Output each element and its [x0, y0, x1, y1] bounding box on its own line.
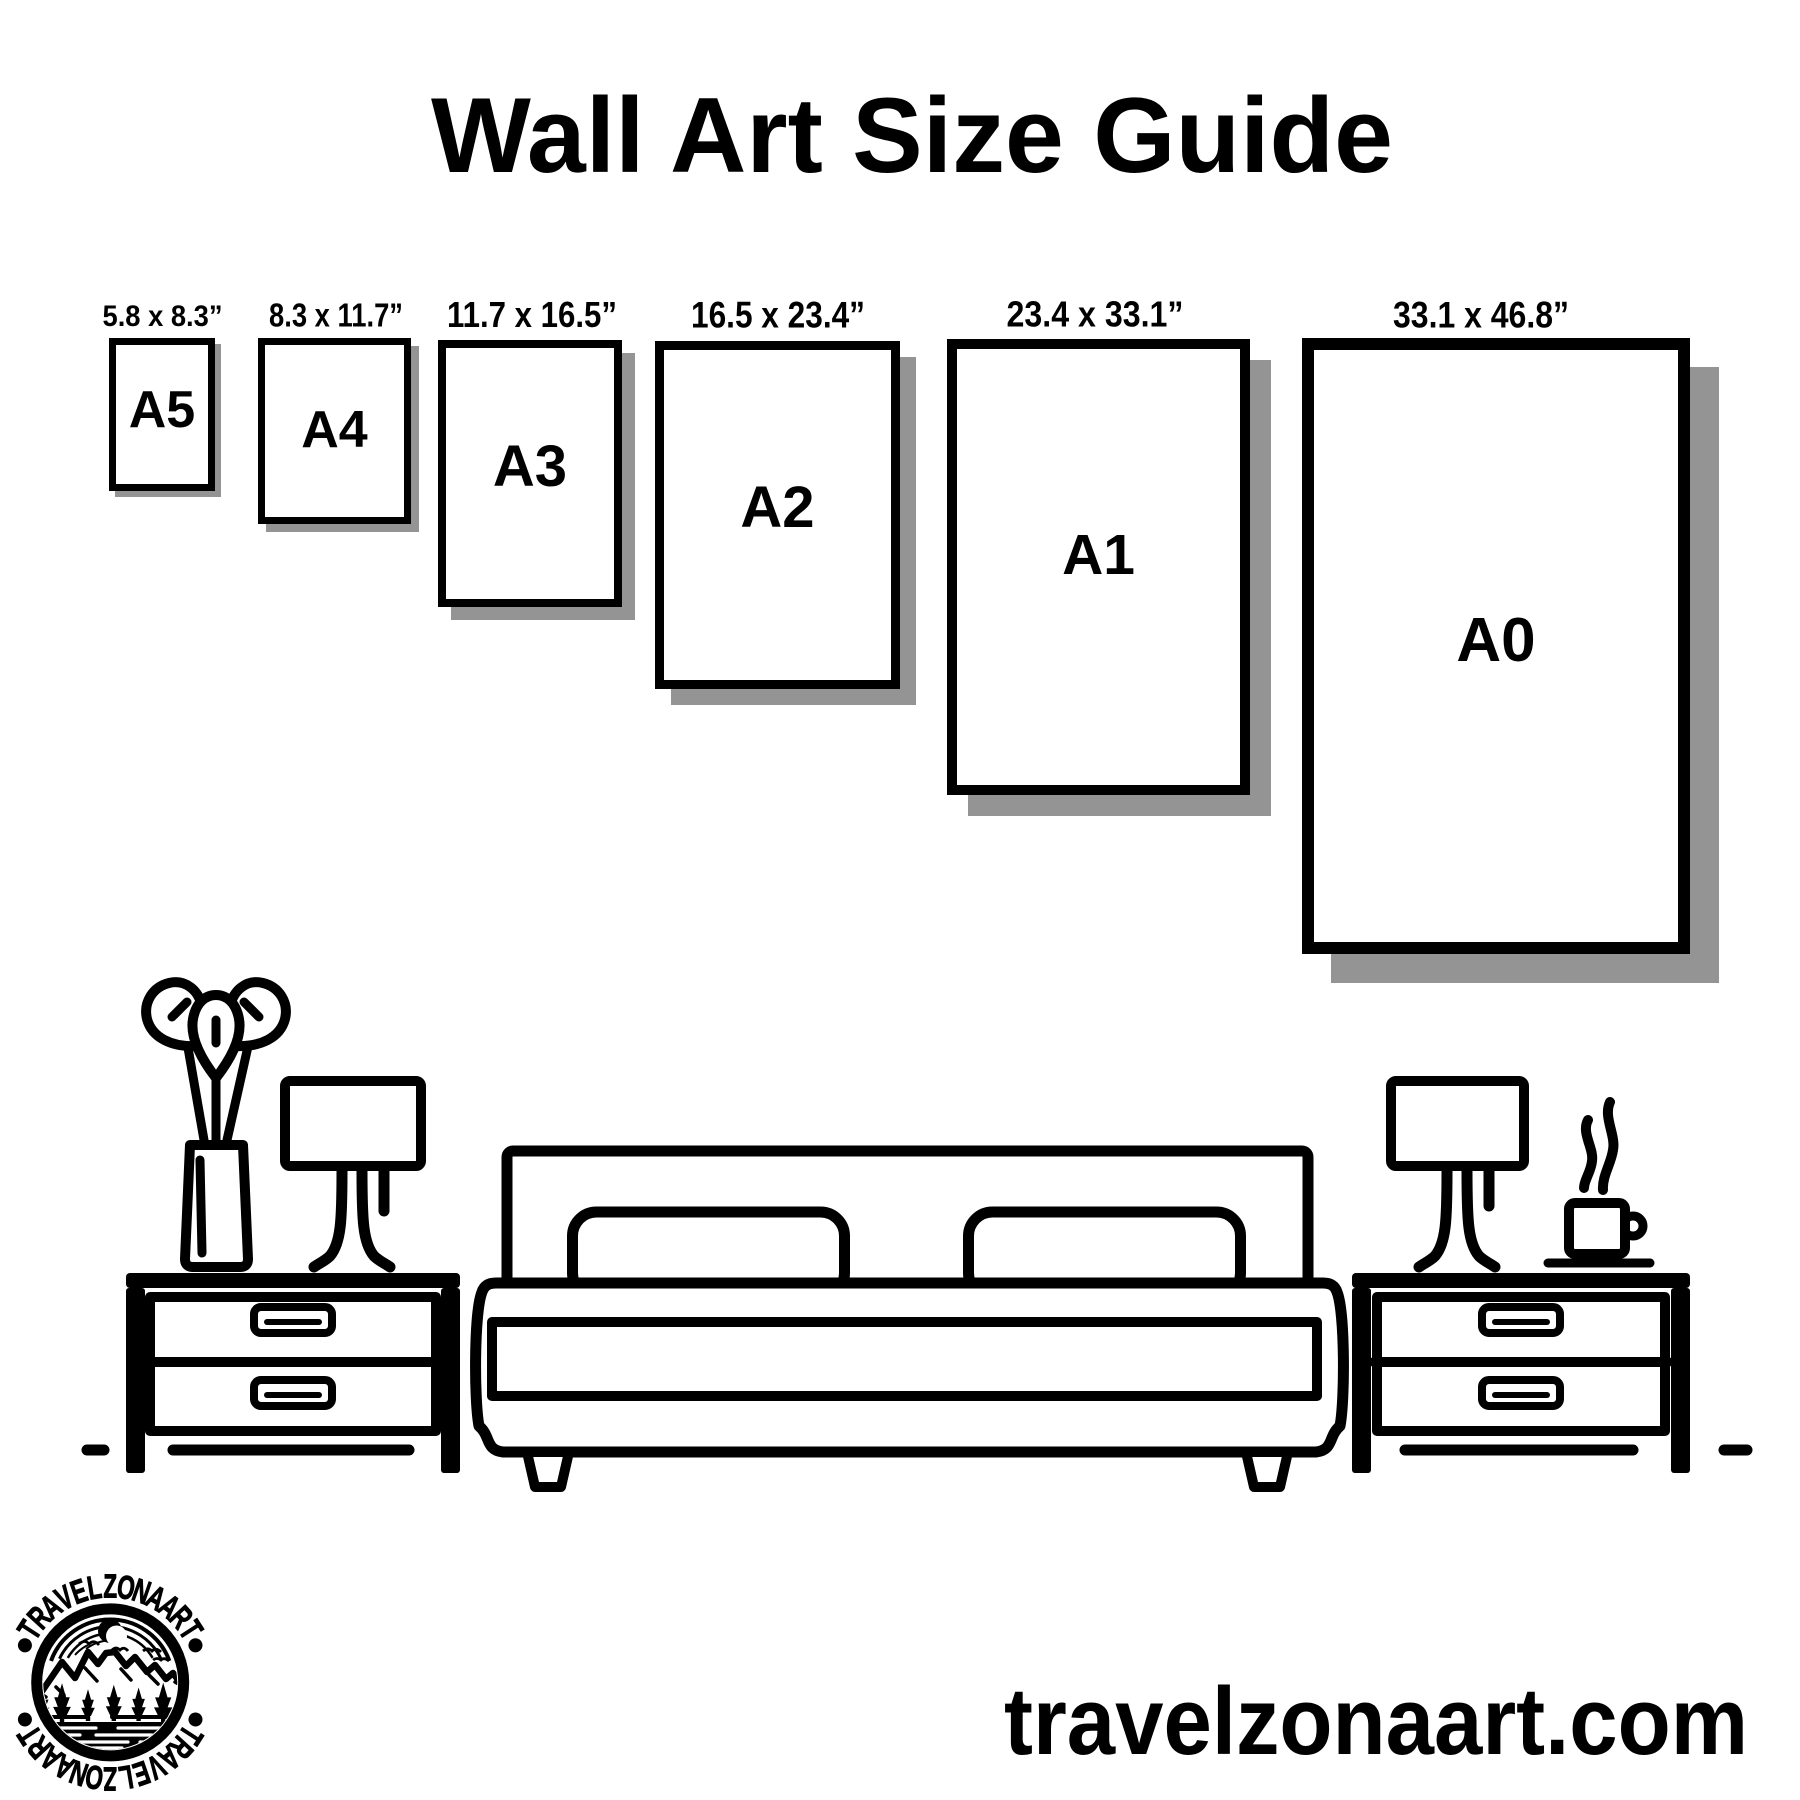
svg-text:A0: A0	[1456, 606, 1535, 675]
svg-text:A3: A3	[493, 434, 567, 499]
svg-text:A1: A1	[1062, 523, 1135, 587]
svg-text:33.1 x 46.8”: 33.1 x 46.8”	[1393, 295, 1569, 336]
svg-text:8.3 x 11.7”: 8.3 x 11.7”	[269, 297, 403, 334]
svg-text:A2: A2	[740, 475, 814, 540]
svg-text:23.4 x 33.1”: 23.4 x 33.1”	[1007, 294, 1184, 335]
svg-text:5.8 x 8.3”: 5.8 x 8.3”	[103, 300, 223, 333]
svg-text:Wall Art Size Guide: Wall Art Size Guide	[431, 75, 1393, 195]
svg-text:travelzonaart.com: travelzonaart.com	[1004, 1668, 1748, 1775]
svg-text:16.5 x 23.4”: 16.5 x 23.4”	[691, 295, 865, 336]
svg-text:A4: A4	[301, 401, 368, 459]
svg-text:A5: A5	[129, 381, 195, 439]
svg-text:11.7 x 16.5”: 11.7 x 16.5”	[447, 294, 617, 335]
